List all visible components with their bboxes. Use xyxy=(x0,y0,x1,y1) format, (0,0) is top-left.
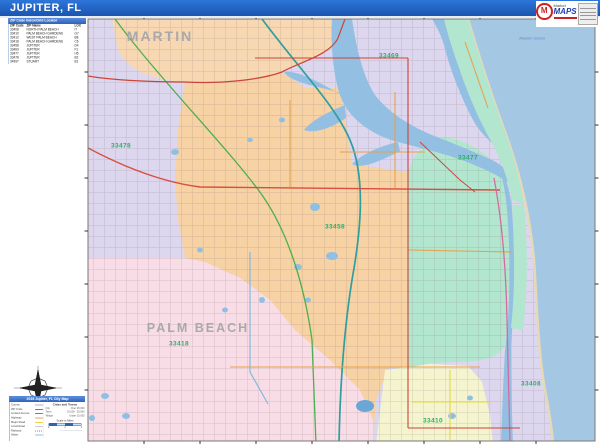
legend-symbol-list: County ZIP Code Limited Access Highway M… xyxy=(11,403,43,437)
logo-contact-box xyxy=(578,3,598,25)
legend-item: Water xyxy=(11,433,43,437)
zip-label-33418: 33418 xyxy=(169,341,189,348)
county-label-palm-beach: PALM BEACH xyxy=(147,321,249,335)
logo-m-icon: M xyxy=(536,3,553,20)
page: { "page": { "title": "JUPITER, FL" }, "l… xyxy=(0,0,600,444)
county-label-martin: MARTIN xyxy=(127,28,193,44)
zip-label-33478: 33478 xyxy=(111,143,131,150)
legend-city-row: VillageUnder 10,000 xyxy=(46,414,85,418)
map-canvas xyxy=(0,0,600,444)
logo-tagline-bar xyxy=(554,17,577,19)
zip-label-33408: 33408 xyxy=(521,381,541,388)
title-bar: JUPITER, FL xyxy=(0,0,600,18)
legend-copyright-line xyxy=(61,430,83,431)
page-title: JUPITER, FL xyxy=(0,0,600,14)
table-row: 34997STUARTB1 xyxy=(9,60,87,64)
map-legend: 2016 Jupiter, FL City Map County ZIP Cod… xyxy=(9,396,85,441)
legend-cities-panel: Cities and Towns CityOver 25,000 Town10,… xyxy=(43,403,85,437)
ocean-label: Atlantic Ocean xyxy=(519,36,545,41)
zip-label-33477: 33477 xyxy=(458,155,478,162)
logo-maps-text: MAPS xyxy=(554,8,577,16)
zip-index-table: ZIP Code Index/Grid Locator ZIP Code ZIP… xyxy=(8,17,86,64)
scale-ticks: 012 xyxy=(46,426,85,429)
scale-label: Scale in Miles xyxy=(46,419,85,422)
zip-label-33458: 33458 xyxy=(325,224,345,231)
zip-label-33469: 33469 xyxy=(379,53,399,60)
marketmaps-logo: M Market MAPS xyxy=(536,1,598,27)
zip-label-33410: 33410 xyxy=(423,418,443,425)
